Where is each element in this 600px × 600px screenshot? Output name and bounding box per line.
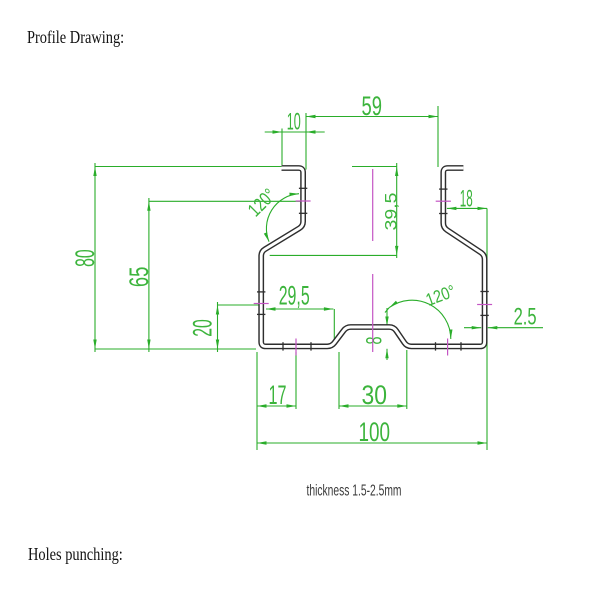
svg-text:59: 59	[362, 91, 383, 121]
svg-text:18: 18	[460, 185, 473, 212]
svg-text:17: 17	[269, 380, 287, 410]
svg-text:30: 30	[362, 380, 388, 410]
svg-text:8: 8	[362, 337, 387, 345]
svg-text:100: 100	[359, 417, 391, 447]
svg-text:2.5: 2.5	[514, 304, 537, 331]
svg-text:120°: 120°	[423, 281, 458, 310]
svg-text:120°: 120°	[244, 185, 280, 221]
svg-text:10: 10	[287, 108, 301, 135]
svg-text:20: 20	[188, 319, 218, 337]
svg-text:39,5: 39,5	[381, 193, 400, 231]
svg-text:65: 65	[124, 267, 154, 288]
svg-text:29,5: 29,5	[279, 280, 310, 310]
svg-text:80: 80	[70, 249, 100, 267]
svg-text:thickness 1.5-2.5mm: thickness 1.5-2.5mm	[307, 483, 402, 500]
